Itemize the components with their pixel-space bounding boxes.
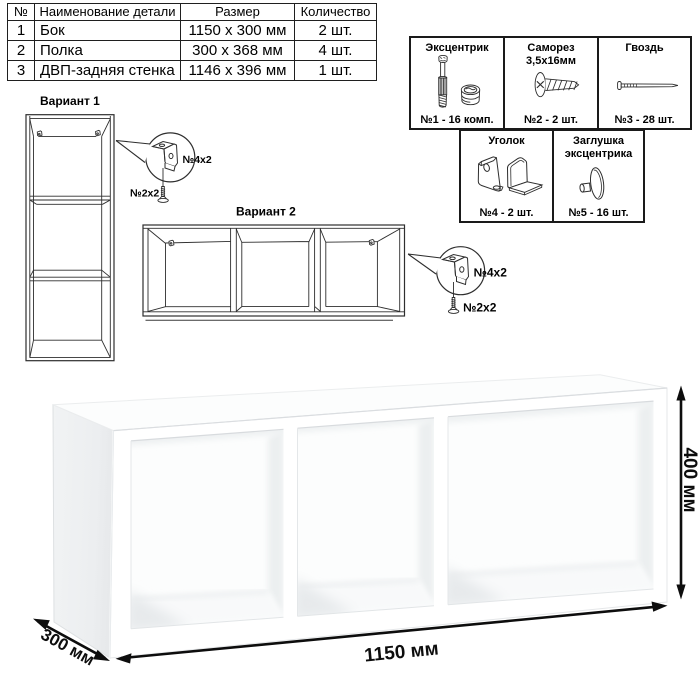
svg-text:№4х2: №4х2 (183, 154, 212, 166)
svg-text:Вариант 2: Вариант 2 (236, 205, 296, 219)
svg-text:Вариант 1: Вариант 1 (40, 94, 100, 108)
svg-text:№4х2: №4х2 (474, 266, 508, 280)
svg-text:№2х2: №2х2 (463, 301, 497, 315)
svg-text:400 мм: 400 мм (679, 447, 700, 512)
svg-text:1150 мм: 1150 мм (363, 638, 439, 666)
svg-text:№2х2: №2х2 (130, 187, 159, 199)
